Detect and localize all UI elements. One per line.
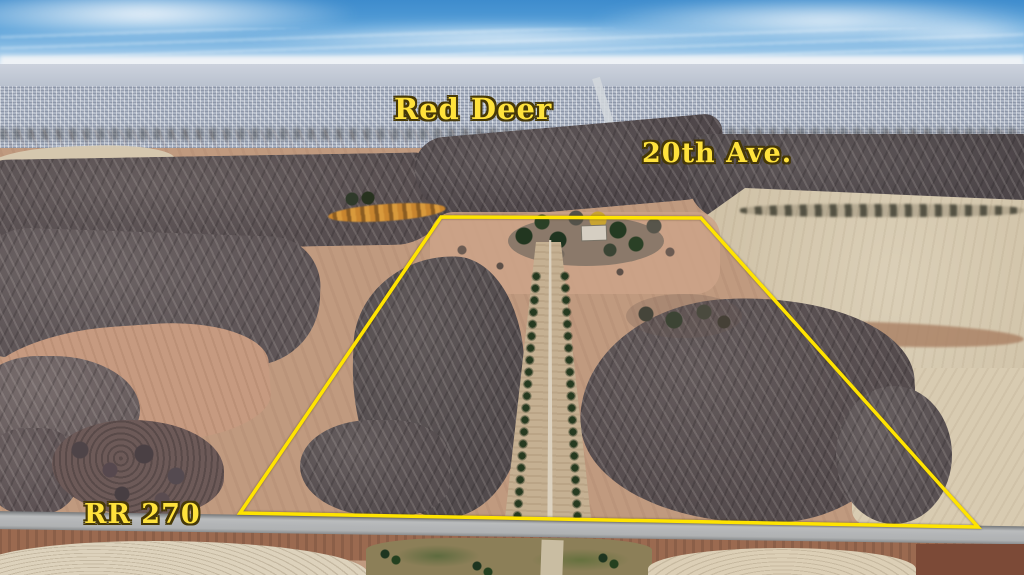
range-road-label: RR 270 <box>84 499 201 530</box>
boundary-overlay <box>0 0 1024 575</box>
avenue-label: 20th Ave. <box>642 138 792 169</box>
aerial-photo: Red Deer 20th Ave. RR 270 <box>0 0 1024 575</box>
city-label: Red Deer <box>394 92 552 126</box>
property-boundary <box>240 217 978 527</box>
